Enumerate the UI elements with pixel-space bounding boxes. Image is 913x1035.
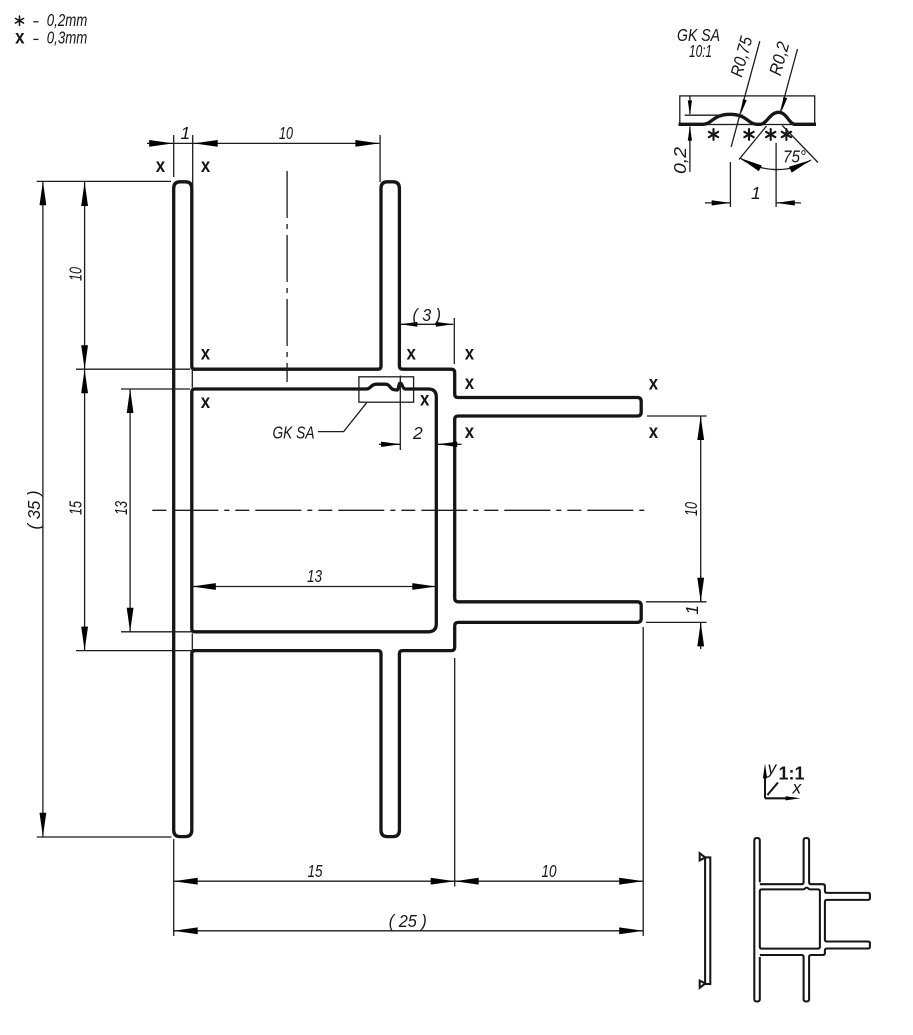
svg-text:15: 15	[308, 861, 323, 881]
svg-text:x: x	[420, 389, 430, 411]
svg-text:x: x	[201, 155, 211, 177]
svg-text:1: 1	[181, 123, 191, 143]
svg-text:0,2: 0,2	[670, 147, 690, 174]
svg-text:15: 15	[66, 501, 86, 515]
svg-text:x: x	[649, 372, 659, 394]
svg-text:x: x	[649, 421, 659, 443]
svg-text:( 35 ): ( 35 )	[24, 491, 44, 530]
svg-text:1: 1	[682, 605, 702, 615]
svg-text:1: 1	[751, 183, 761, 203]
svg-text:75°: 75°	[783, 147, 806, 167]
svg-text:( 25 ): ( 25 )	[389, 911, 427, 931]
svg-text:x: x	[156, 155, 166, 177]
svg-text:x: x	[465, 421, 475, 443]
svg-text:10: 10	[681, 502, 701, 516]
svg-text:x: x	[15, 27, 25, 49]
svg-text:13: 13	[307, 566, 322, 586]
svg-text:x: x	[201, 342, 211, 364]
svg-text:10: 10	[66, 267, 86, 281]
svg-text:10:1: 10:1	[689, 41, 712, 61]
svg-text:10: 10	[542, 861, 557, 881]
svg-text:GK SA: GK SA	[273, 423, 315, 443]
svg-text:0,3mm: 0,3mm	[47, 28, 88, 48]
svg-text:( 3 ): ( 3 )	[413, 305, 442, 325]
svg-text:10: 10	[279, 123, 293, 143]
svg-text:2: 2	[412, 423, 423, 443]
svg-text:y: y	[767, 758, 778, 778]
svg-text:13: 13	[111, 501, 131, 515]
svg-text:x: x	[201, 391, 211, 413]
svg-text:x: x	[465, 372, 475, 394]
svg-text:x: x	[792, 778, 803, 798]
svg-text:x: x	[465, 342, 475, 364]
svg-text:x: x	[407, 342, 417, 364]
